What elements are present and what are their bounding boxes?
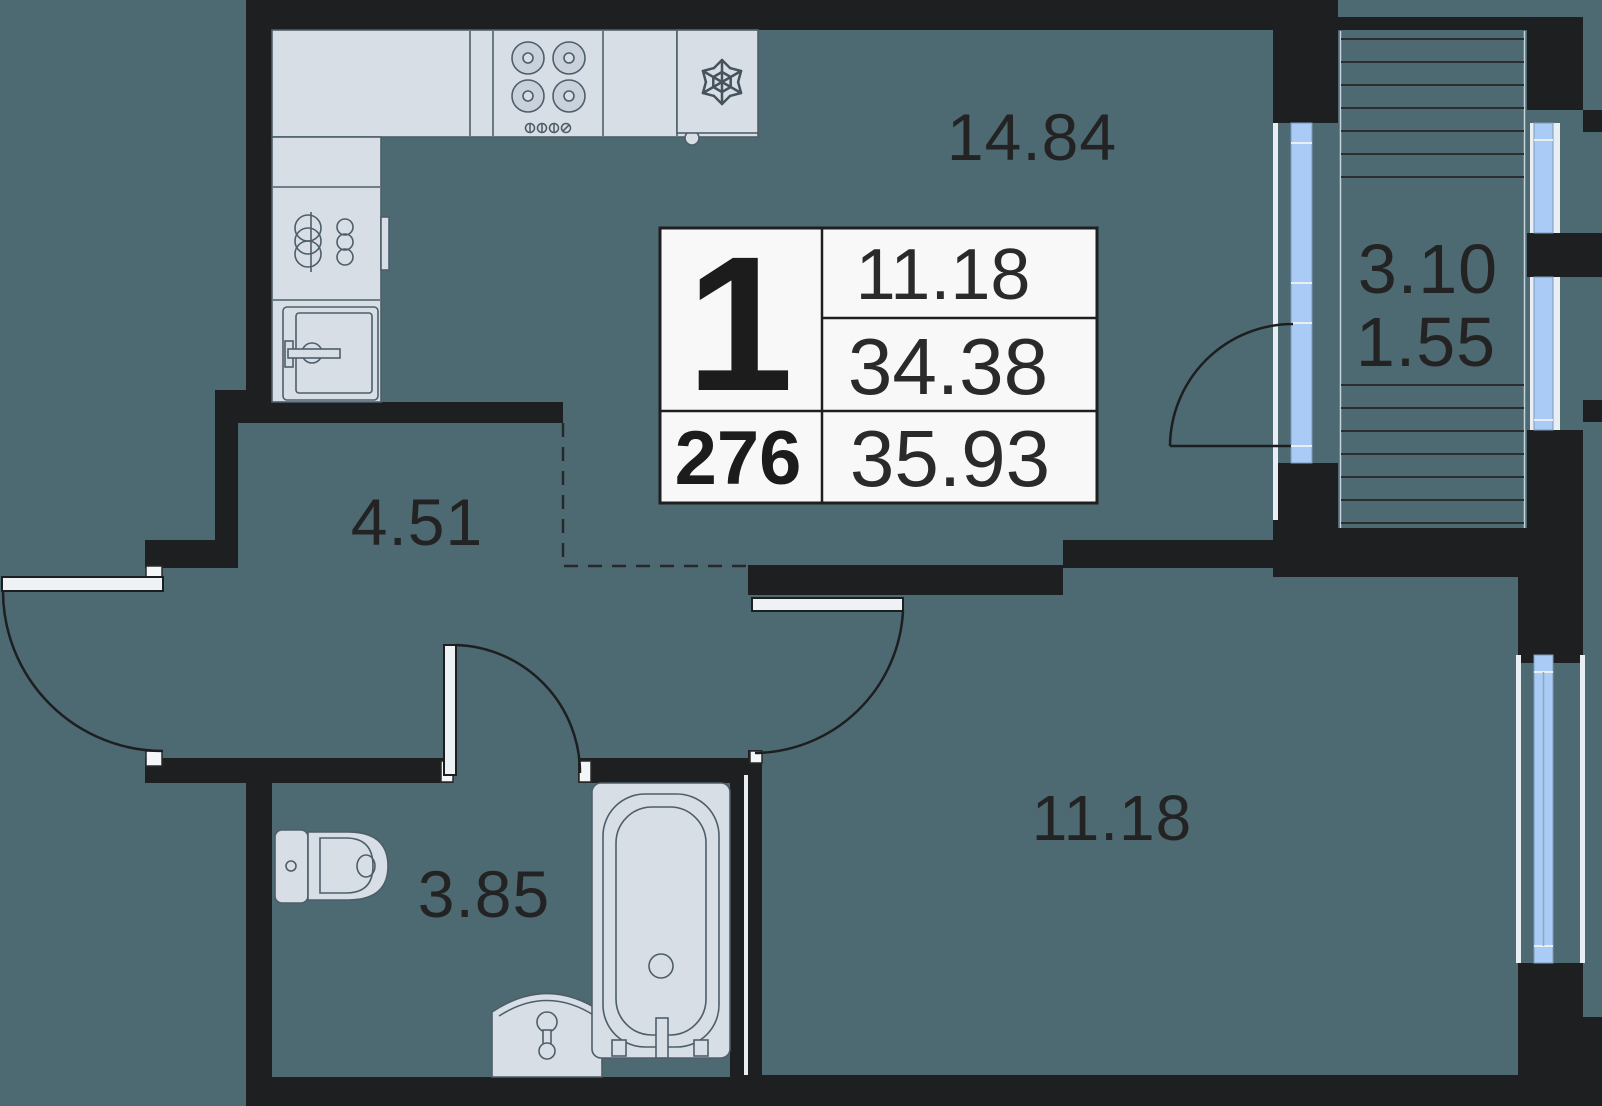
wall-segment [246, 0, 272, 423]
window-casing [1553, 277, 1560, 430]
sink-drain [539, 1043, 555, 1059]
wall-segment [1273, 0, 1338, 123]
door-swing-arc [456, 645, 580, 773]
burner [553, 80, 585, 112]
wall-segment [1518, 577, 1583, 663]
floor-plan: 1 276 11.18 34.38 35.93 14.84 4.51 3.85 … [0, 0, 1602, 1106]
door-swing-arc [3, 591, 163, 751]
washer-handle-bar [288, 349, 340, 358]
wall-segment [1063, 540, 1278, 568]
living-area-value: 11.18 [856, 235, 1031, 315]
wall-segment [1527, 233, 1602, 277]
wall-segment [1583, 400, 1602, 422]
bathtub [592, 783, 730, 1058]
window-casing [1580, 655, 1585, 963]
door-jamb [146, 751, 162, 766]
window-living-room [1273, 123, 1312, 520]
wall-segment [145, 540, 238, 568]
wall-segment [1278, 540, 1583, 577]
bath-sink [492, 994, 602, 1078]
window-balcony-right-top [1530, 123, 1560, 233]
label-bathroom-area: 3.85 [418, 857, 550, 931]
burner [512, 80, 544, 112]
burner [512, 42, 544, 74]
door-leaf [444, 645, 456, 775]
label-bedroom-area: 11.18 [1032, 782, 1192, 854]
info-table: 1 276 11.18 34.38 35.93 [660, 216, 1097, 503]
label-hallway-area: 4.51 [351, 485, 483, 559]
window-balcony-right-bottom [1530, 277, 1560, 430]
door-swing-arc [755, 611, 903, 753]
label-balcony-reduced-area: 1.55 [1356, 303, 1496, 381]
counter-handle [381, 217, 389, 270]
label-balcony-area: 3.10 [1358, 230, 1498, 308]
wall-segment [762, 1075, 1602, 1106]
door-leaf [2, 577, 163, 591]
burner [553, 42, 585, 74]
wall-segment [1338, 17, 1583, 30]
tub-outer [592, 783, 730, 1058]
wall-segment [145, 758, 453, 783]
window-casing [1553, 123, 1560, 233]
wall-segment [246, 1077, 762, 1106]
wall-segment [246, 758, 272, 1106]
wall-gap-line [744, 775, 748, 1075]
total-area-value: 35.93 [850, 414, 1050, 503]
toilet-tank [275, 830, 308, 903]
window-glass [1291, 123, 1312, 463]
area-value: 34.38 [848, 322, 1048, 411]
label-kitchen-living-area: 14.84 [947, 100, 1117, 174]
sink-faucet [537, 1012, 557, 1032]
window-casing [1530, 277, 1534, 430]
entry-door [2, 566, 163, 766]
window-bedroom [1516, 655, 1585, 963]
fridge-body [677, 30, 758, 133]
window-glass [1534, 277, 1553, 430]
door-leaf [752, 598, 903, 611]
washing-machine [283, 307, 378, 400]
floor-plan-svg: 1 276 11.18 34.38 35.93 14.84 4.51 3.85 … [0, 0, 1602, 1106]
fridge [677, 30, 758, 145]
tub-faucet [656, 1018, 668, 1058]
wall-segment [246, 0, 1338, 30]
wall-segment [1527, 30, 1583, 110]
wall-segment [238, 402, 563, 423]
bathroom-door [441, 645, 591, 782]
rooms-count: 1 [687, 216, 794, 431]
tub-foot [694, 1040, 708, 1056]
wall-segment [1518, 963, 1583, 1077]
wall-segment [1527, 430, 1583, 528]
toilet [275, 830, 388, 903]
wall-segment [748, 565, 1063, 595]
wall-segment [1583, 110, 1602, 132]
unit-number: 276 [675, 416, 802, 501]
window-casing [1530, 123, 1534, 233]
window-casing [1273, 123, 1278, 520]
tub-foot [612, 1040, 626, 1056]
window-casing [1516, 655, 1521, 963]
bedroom-door [750, 598, 903, 763]
